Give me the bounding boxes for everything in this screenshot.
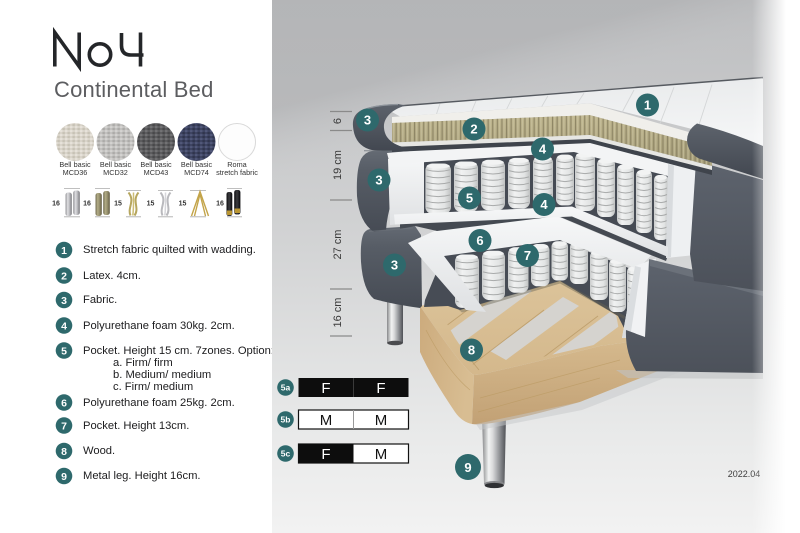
- svg-text:5b: 5b: [281, 415, 291, 425]
- svg-text:M: M: [375, 412, 388, 429]
- svg-text:F: F: [321, 446, 330, 463]
- svg-text:4: 4: [539, 142, 547, 157]
- svg-text:3: 3: [375, 173, 382, 188]
- svg-text:8: 8: [468, 343, 475, 358]
- svg-text:M: M: [375, 446, 388, 463]
- svg-text:7: 7: [524, 248, 531, 263]
- svg-text:6: 6: [476, 233, 483, 248]
- svg-text:5c: 5c: [281, 449, 291, 459]
- svg-text:19 cm: 19 cm: [332, 150, 344, 180]
- svg-text:27 cm: 27 cm: [332, 230, 344, 260]
- svg-text:4: 4: [540, 197, 548, 212]
- svg-text:16 cm: 16 cm: [332, 298, 344, 328]
- svg-text:6: 6: [332, 118, 344, 124]
- svg-text:F: F: [321, 380, 330, 397]
- svg-text:2: 2: [470, 122, 477, 137]
- svg-text:F: F: [376, 380, 385, 397]
- svg-text:5a: 5a: [281, 383, 291, 393]
- svg-text:9: 9: [464, 460, 471, 475]
- svg-text:3: 3: [391, 258, 398, 273]
- svg-text:M: M: [320, 412, 333, 429]
- svg-text:1: 1: [644, 98, 651, 113]
- svg-text:3: 3: [364, 113, 371, 128]
- svg-text:5: 5: [466, 191, 473, 206]
